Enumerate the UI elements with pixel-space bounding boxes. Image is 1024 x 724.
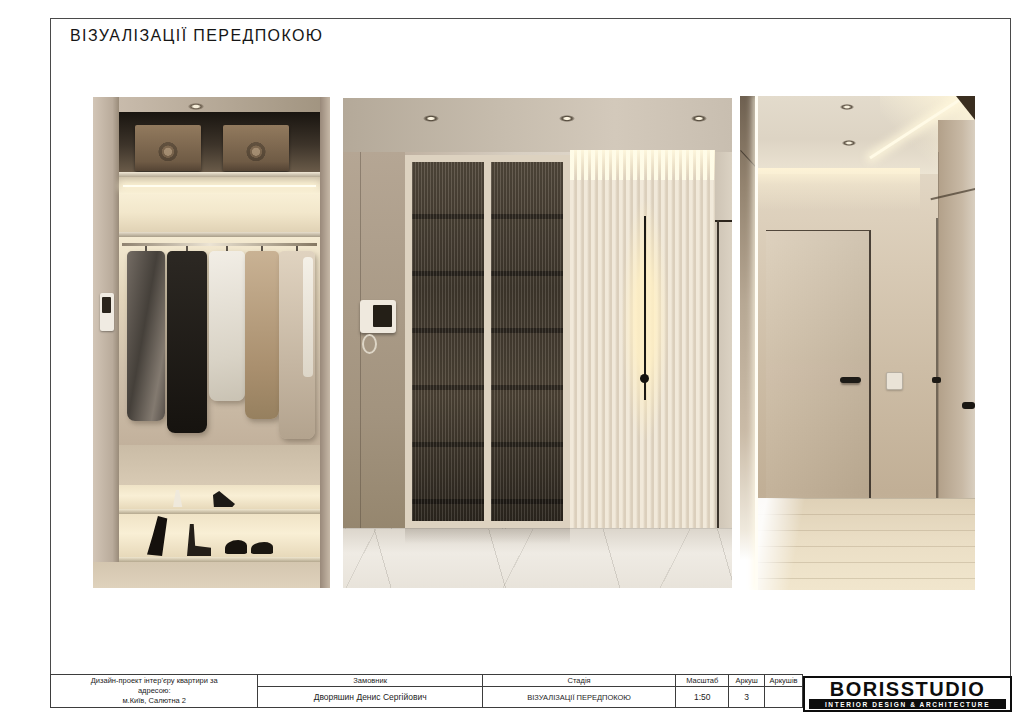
leather-jacket xyxy=(127,251,165,421)
scarf xyxy=(303,257,313,377)
door-handle xyxy=(962,402,975,409)
wall-corner-line xyxy=(360,152,361,532)
black-flat-shoe xyxy=(225,540,247,554)
floor-light-reflection xyxy=(758,498,828,590)
floor-reflection xyxy=(405,528,570,544)
intercom-panel xyxy=(100,293,114,331)
right-wall xyxy=(938,120,975,552)
led-strip xyxy=(123,185,316,187)
shoe-shelf-upper xyxy=(119,485,320,509)
scale-value: 1:50 xyxy=(676,687,728,707)
white-heels xyxy=(173,490,189,507)
studio-tagline: INTERIOR DESIGN & ARCHITECTURE xyxy=(809,699,1006,709)
wall-corner-line xyxy=(938,152,939,498)
clothes-rail xyxy=(122,243,317,246)
clothes-rail-section xyxy=(119,237,320,445)
project-line: адресою: xyxy=(51,686,257,696)
title-block-table: Дизайн-проект інтер'єру квартири за адре… xyxy=(50,674,803,708)
customer-label: Замовник xyxy=(258,675,481,687)
ceiling-spotlight-icon xyxy=(840,104,854,110)
video-intercom xyxy=(360,300,396,333)
ceiling xyxy=(343,98,732,152)
mirror-edge xyxy=(740,96,755,590)
hallway-render xyxy=(343,98,732,588)
customer-column: Замовник Дворяшин Денис Сергійович xyxy=(258,675,482,707)
closet-interior xyxy=(119,112,320,562)
sheets-label: Аркушів xyxy=(765,675,802,687)
beige-blouse xyxy=(245,251,279,419)
hidden-door xyxy=(766,230,871,499)
shoe-shelf-lower xyxy=(119,514,320,557)
design-sheet-page: ВІЗУАЛІЗАЦІЇ ПЕРЕДПОКОЮ xyxy=(0,0,1024,724)
closet-top-wall xyxy=(93,97,330,113)
stage-label: Стадія xyxy=(483,675,675,687)
storage-box xyxy=(135,125,201,171)
cove-lighting xyxy=(758,168,920,210)
intercom-screen xyxy=(102,297,111,313)
black-heels xyxy=(213,491,235,507)
intercom-handset xyxy=(362,334,377,354)
project-line: Дизайн-проект інтер'єру квартири за xyxy=(51,676,257,686)
scale-label: Масштаб xyxy=(676,675,728,687)
ceiling-spotlight-icon xyxy=(842,140,856,146)
ceiling-spotlight-icon xyxy=(188,103,204,110)
page-title: ВІЗУАЛІЗАЦІЇ ПЕРЕДПОКОЮ xyxy=(70,27,323,45)
upper-storage-niche xyxy=(119,112,320,172)
linear-wall-lamp xyxy=(644,216,646,400)
heeled-sandals xyxy=(187,524,211,556)
project-line: м.Київ, Салютна 2 xyxy=(51,696,257,706)
stage-column: Стадія ВІЗУАЛІЗАЦІЇ ПЕРЕДПОКОЮ xyxy=(483,675,676,707)
light-switch xyxy=(886,372,903,390)
black-flat-shoe xyxy=(251,542,273,554)
mirror-reflection-line xyxy=(740,150,756,167)
sheet-value: 3 xyxy=(729,687,764,707)
lit-shelf-section xyxy=(119,177,320,232)
studio-logo: BORISSTUDIO INTERIOR DESIGN & ARCHITECTU… xyxy=(803,676,1012,712)
stage-value: ВІЗУАЛІЗАЦІЇ ПЕРЕДПОКОЮ xyxy=(483,687,675,707)
fluted-glass-wardrobe xyxy=(405,155,570,528)
door-frame-line xyxy=(936,218,938,498)
ceiling-spotlight-icon xyxy=(691,115,707,122)
customer-value: Дворяшин Денис Сергійович xyxy=(258,687,481,707)
project-cell: Дизайн-проект інтер'єру квартири за адре… xyxy=(51,675,258,707)
white-shirt xyxy=(209,251,245,401)
ceiling-spotlight-icon xyxy=(559,115,575,122)
closet-floor xyxy=(93,562,330,588)
black-coat xyxy=(167,251,207,433)
storage-box xyxy=(223,125,289,171)
reeded-wall-panel xyxy=(570,150,715,535)
corridor-view xyxy=(758,96,975,590)
sheets-column: Аркушів xyxy=(765,675,802,707)
studio-name: BORISSTUDIO xyxy=(830,679,985,699)
scale-column: Масштаб 1:50 xyxy=(676,675,729,707)
sheets-value xyxy=(765,687,802,707)
right-door-edge xyxy=(715,152,732,532)
door-handle xyxy=(932,377,941,383)
fluted-glass-door xyxy=(491,162,563,521)
fluted-glass-door xyxy=(412,162,484,521)
ceiling-spotlight-icon xyxy=(423,115,439,122)
closet-render xyxy=(93,97,330,588)
door-gap-line xyxy=(717,220,719,528)
sheet-column: Аркуш 3 xyxy=(729,675,765,707)
closet-right-wall xyxy=(320,97,330,588)
black-boots xyxy=(147,516,173,556)
back-wall xyxy=(119,445,320,485)
cove-lighting xyxy=(570,150,715,180)
lamp-sphere xyxy=(640,374,649,383)
door-handle xyxy=(840,377,861,383)
corridor-render xyxy=(740,96,975,590)
sheet-label: Аркуш xyxy=(729,675,764,687)
intercom-screen xyxy=(373,305,392,327)
closet-left-wall xyxy=(93,97,119,588)
